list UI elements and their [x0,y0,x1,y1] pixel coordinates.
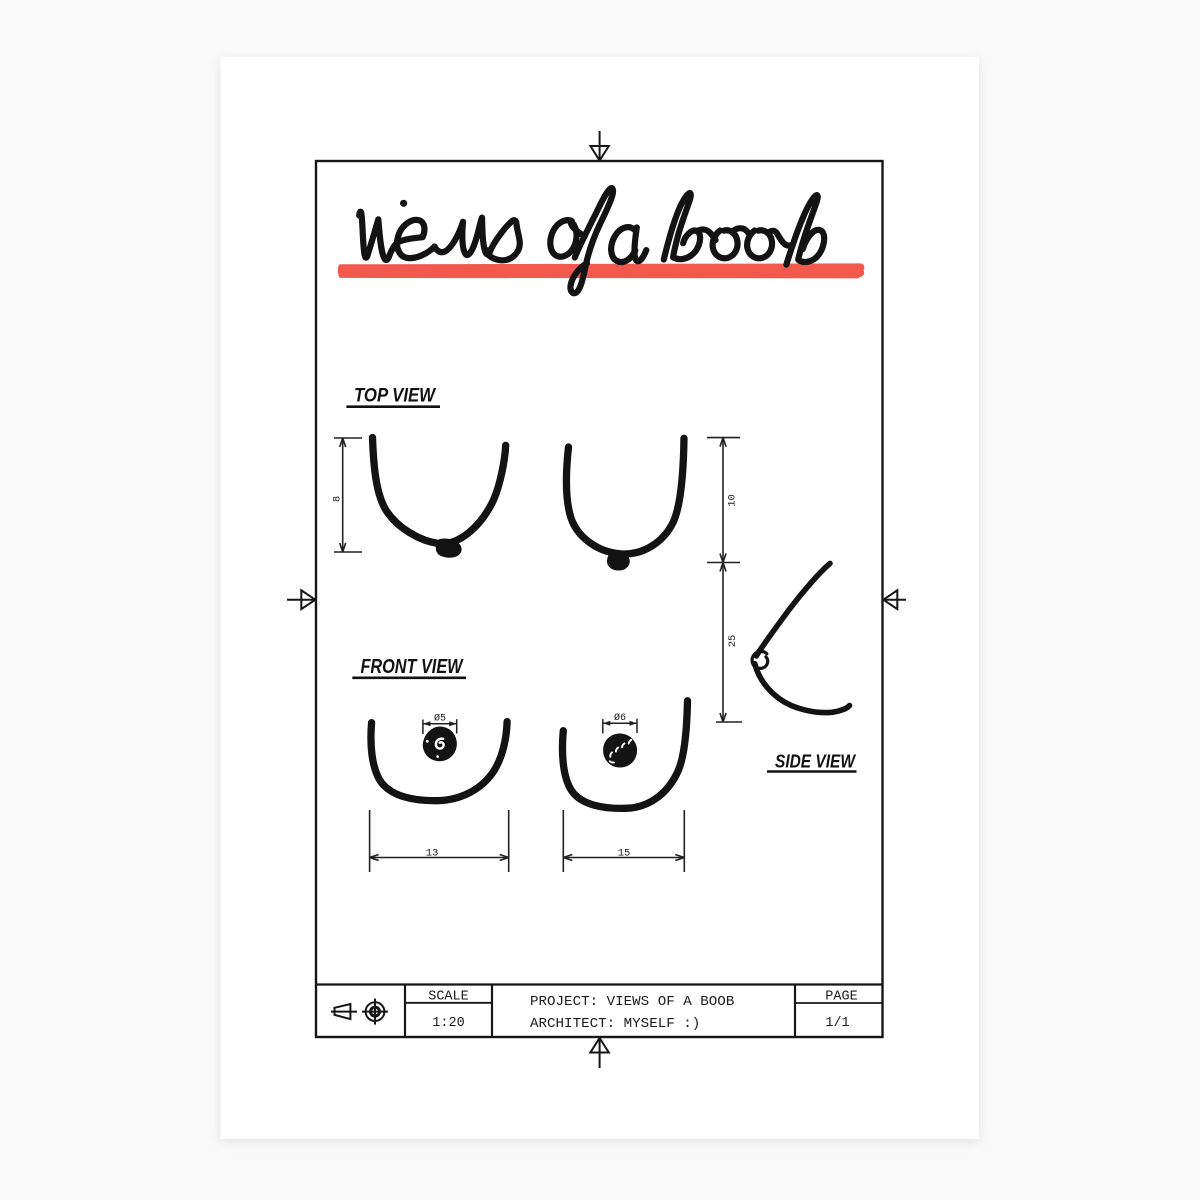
svg-text:13: 13 [426,848,439,860]
svg-text:25: 25 [727,635,739,648]
svg-text:1/1: 1/1 [825,1016,849,1031]
svg-text:Ø5: Ø5 [434,713,446,725]
svg-text:SCALE: SCALE [428,990,469,1005]
svg-text:Ø6: Ø6 [614,712,626,724]
svg-text:SIDE VIEW: SIDE VIEW [775,752,857,772]
svg-text:TOP VIEW: TOP VIEW [354,386,437,407]
svg-text:15: 15 [618,848,631,860]
svg-text:PROJECT: VIEWS OF A BOOB: PROJECT: VIEWS OF A BOOB [530,994,734,1010]
svg-text:PAGE: PAGE [825,990,857,1005]
svg-text:ARCHITECT: MYSELF :): ARCHITECT: MYSELF :) [530,1016,700,1032]
svg-text:FRONT VIEW: FRONT VIEW [361,656,465,678]
svg-text:1:20: 1:20 [432,1016,464,1031]
svg-text:8: 8 [332,496,344,502]
svg-text:10: 10 [727,494,739,507]
